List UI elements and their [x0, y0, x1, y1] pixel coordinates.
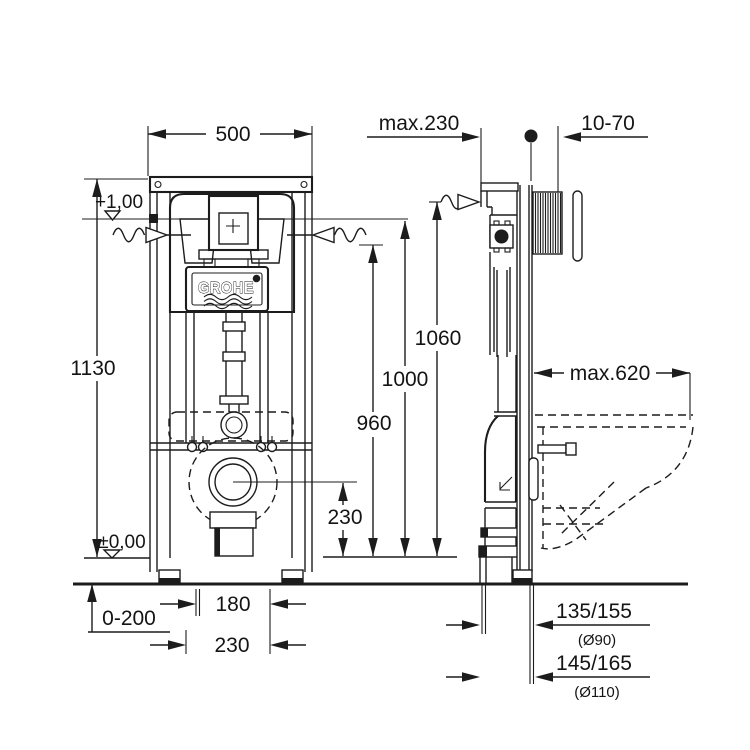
technical-drawing: GROHE	[0, 0, 750, 750]
dim-label-max620: max.620	[570, 362, 651, 385]
dim-label-1000: 1000	[382, 368, 429, 391]
wall-reference-dot-icon	[525, 130, 538, 143]
pipe-collar-2	[223, 352, 245, 361]
level-top-marker: +1,00	[95, 192, 143, 220]
dim-10-70: 10-70	[558, 112, 648, 192]
dim-label-960: 960	[356, 412, 391, 435]
dim-label-10-70: 10-70	[581, 112, 635, 135]
fixing-gasket	[529, 458, 538, 500]
drain-collar	[210, 512, 256, 528]
drain-pipe-side	[485, 537, 516, 546]
dim-label-1130: 1130	[70, 357, 115, 380]
dim-label-dia110: (Ø110)	[574, 684, 620, 701]
dim-max-620: max.620	[534, 362, 690, 420]
toilet-bowl-dashed	[535, 415, 693, 549]
dim-frame-height: 1130	[70, 179, 148, 557]
fixing-stud-head	[566, 443, 576, 455]
drain-collar-cap-1	[481, 528, 488, 537]
drain-joint	[485, 502, 516, 528]
dim-label-0-200: 0-200	[102, 607, 156, 630]
brand-logo: GROHE	[186, 267, 268, 311]
wall-rail-fill	[517, 185, 532, 572]
dim-label-145-165: 145/165	[556, 652, 632, 675]
actuation-plate	[573, 191, 582, 261]
fixing-stud	[538, 445, 566, 453]
bowl-front-curve	[646, 427, 693, 488]
dim-label-230: 230	[214, 634, 249, 657]
foot-left-base	[159, 578, 180, 582]
dim-foot-range: 0-200	[87, 584, 170, 632]
dim-label-180: 180	[215, 593, 250, 616]
mounting-bolt-icon	[268, 443, 277, 452]
dim-max-230: max.230	[367, 112, 481, 183]
dim-label-max230: max.230	[379, 112, 460, 135]
level-label-top: +1,00	[95, 192, 143, 213]
pipe-neck	[229, 404, 239, 412]
cistern-profile-channel	[490, 252, 510, 357]
registered-dot-icon	[253, 275, 261, 283]
mounting-bolt-icon	[188, 443, 197, 452]
rail-foot-base	[513, 578, 532, 582]
valve-base-bar	[199, 250, 268, 259]
dim-frame-width: 500	[148, 123, 312, 176]
drain-collar-cap-2	[479, 546, 487, 557]
flush-pipe-side	[498, 355, 516, 412]
dim-bottom-offsets: 180 230	[150, 589, 306, 657]
level-triangle-icon	[104, 550, 120, 558]
dim-label-1060: 1060	[415, 327, 462, 350]
bracket-lines	[150, 443, 312, 450]
elbow-notch	[500, 477, 512, 490]
drain-pipe-bottom	[480, 557, 518, 584]
pipe-flange	[220, 396, 248, 404]
squiggle-left	[113, 228, 145, 242]
installation-frame-diagram: GROHE	[0, 0, 750, 750]
drain-outlet-edge	[215, 528, 220, 556]
brand-logo-text: GROHE	[198, 280, 254, 297]
bowl-outlet-lines	[543, 508, 607, 524]
pipe-connector-outer	[221, 412, 247, 438]
dim-heights: 960 1000 1060	[356, 202, 461, 556]
dim-label-135-155: 135/155	[556, 600, 632, 623]
wall-arrow-right-icon	[313, 228, 334, 243]
corner-screw-right-icon	[301, 182, 307, 188]
fitting-bolt-icon	[495, 230, 509, 244]
drain-outlet-box	[215, 528, 253, 556]
dim-label-500: 500	[215, 123, 250, 146]
wall-arrow-side-icon	[458, 195, 479, 210]
dim-label-drain-230: 230	[327, 506, 362, 529]
frame-top-bar	[150, 177, 312, 192]
foot-right-base	[282, 578, 303, 582]
corner-screw-left-icon	[155, 182, 161, 188]
below-floor-lines	[482, 584, 534, 684]
dim-label-dia90: (Ø90)	[578, 632, 616, 649]
squiggle-right	[335, 228, 367, 242]
dim-drain-offsets: 135/155 (Ø90) 145/165 (Ø110)	[446, 600, 650, 701]
pipe-collar-1	[223, 322, 245, 331]
dim-drain-height: 230	[327, 483, 362, 556]
bowl-underside	[541, 488, 646, 549]
bowl-hidden-lines	[560, 482, 614, 540]
wall-anchor-bracket	[481, 183, 518, 191]
level-floor-marker: ±0,00	[98, 532, 145, 558]
